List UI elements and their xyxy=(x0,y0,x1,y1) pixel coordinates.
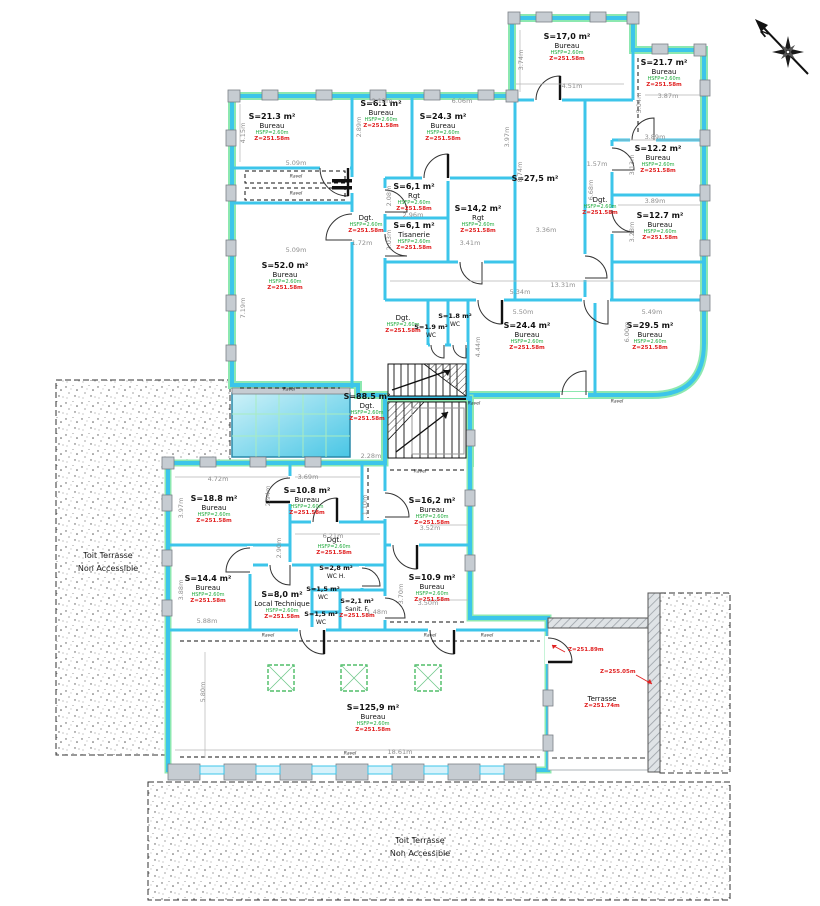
bottom-roof-terrace xyxy=(148,782,730,900)
floorplan-canvas: N xyxy=(0,0,820,906)
right-roof-terrace xyxy=(660,593,730,773)
terrasse-area xyxy=(548,593,660,772)
floor-plan: N S=21.3 m²BureauHSFP=2.60mZ=251.58mS=6.… xyxy=(0,0,820,906)
compass-icon: N xyxy=(755,19,808,74)
stairs xyxy=(388,364,466,458)
glass-canopy xyxy=(232,388,350,457)
